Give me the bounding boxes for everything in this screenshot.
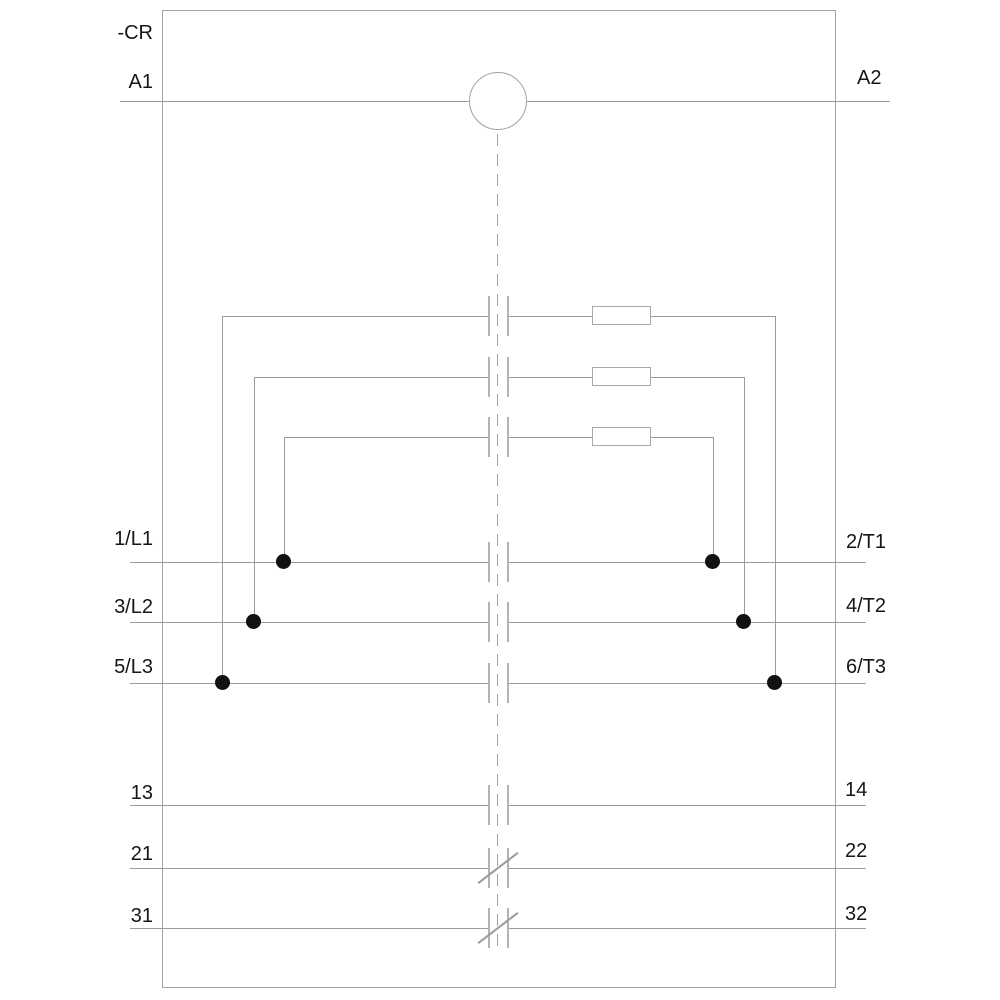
junction-dot (736, 614, 751, 629)
contact-bar (488, 542, 490, 582)
wire (650, 437, 713, 438)
coil-symbol (469, 72, 527, 130)
junction-dot (705, 554, 720, 569)
contact-bar (507, 848, 509, 888)
junction-dot (215, 675, 230, 690)
wire-14 (508, 805, 866, 806)
contact-bar (507, 542, 509, 582)
contact-bar (488, 785, 490, 825)
terminal-label-31: 31 (83, 906, 153, 926)
wire (508, 316, 592, 317)
wire (508, 377, 592, 378)
terminal-label-2t1: 2/T1 (846, 532, 886, 552)
contact-bar (488, 908, 490, 948)
contact-bar (488, 848, 490, 888)
terminal-label-6t3: 6/T3 (846, 657, 886, 677)
contact-bar (507, 602, 509, 642)
contact-bar (507, 785, 509, 825)
junction-dot (276, 554, 291, 569)
wire (222, 316, 489, 317)
wire-l3 (130, 683, 489, 684)
wire-t1 (508, 562, 866, 563)
resistor-symbol (592, 367, 651, 386)
contact-bar (488, 296, 490, 336)
resistor-symbol (592, 427, 651, 446)
contact-bar (507, 417, 509, 457)
wire (650, 316, 775, 317)
contact-bar (488, 357, 490, 397)
device-outline-frame (162, 10, 836, 988)
terminal-label-4t2: 4/T2 (846, 596, 886, 616)
terminal-label-a1: A1 (83, 72, 153, 92)
wire-32 (508, 928, 866, 929)
wire (222, 316, 223, 683)
terminal-label-3l2: 3/L2 (83, 597, 153, 617)
wire (284, 437, 489, 438)
wire-a2 (527, 101, 890, 102)
contact-bar (488, 602, 490, 642)
junction-dot (246, 614, 261, 629)
junction-dot (767, 675, 782, 690)
wire (508, 437, 592, 438)
terminal-label-21: 21 (83, 844, 153, 864)
terminal-label-32: 32 (845, 904, 867, 924)
contact-bar (507, 296, 509, 336)
wire (744, 377, 745, 622)
wire (254, 377, 255, 622)
contact-bar (507, 357, 509, 397)
wire (254, 377, 489, 378)
terminal-label-5l3: 5/L3 (83, 657, 153, 677)
wire-l2 (130, 622, 489, 623)
wire (650, 377, 744, 378)
wire-22 (508, 868, 866, 869)
wire (775, 316, 776, 683)
contact-bar (488, 417, 490, 457)
wire (284, 437, 285, 562)
terminal-label-a2: A2 (857, 68, 881, 88)
terminal-label-14: 14 (845, 780, 867, 800)
contact-bar (507, 908, 509, 948)
schematic-canvas: -CR A1 A2 1/L1 3/L2 5/L3 2/T1 4/T2 6/T3 … (0, 0, 1000, 1000)
wire-21 (130, 868, 489, 869)
terminal-label-13: 13 (83, 783, 153, 803)
terminal-label-1l1: 1/L1 (83, 529, 153, 549)
wire-t2 (508, 622, 866, 623)
contact-bar (488, 663, 490, 703)
wire-31 (130, 928, 489, 929)
device-designation: -CR (83, 23, 153, 43)
terminal-label-22: 22 (845, 841, 867, 861)
wire-l1 (130, 562, 489, 563)
resistor-symbol (592, 306, 651, 325)
wire-t3 (508, 683, 866, 684)
wire (713, 437, 714, 562)
wire-13 (130, 805, 489, 806)
actuator-dashed-line (497, 134, 498, 950)
wire-a1 (120, 101, 469, 102)
contact-bar (507, 663, 509, 703)
